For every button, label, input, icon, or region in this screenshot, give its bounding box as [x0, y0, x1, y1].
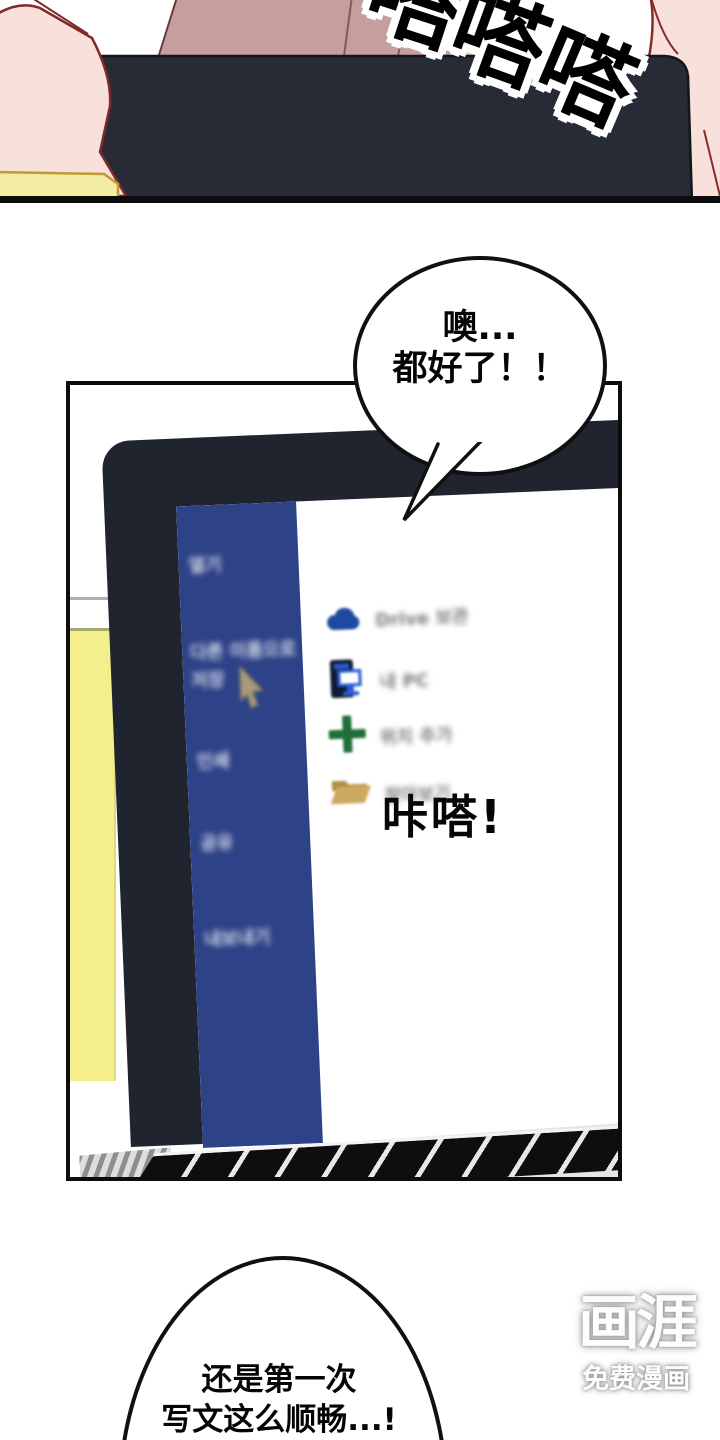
- left-arm: [0, 5, 126, 196]
- sidebar-item-saveas: 다른 이름으로: [190, 635, 297, 665]
- speech-bubble-top-tail: [392, 442, 492, 526]
- mouse-cursor-icon: [237, 666, 269, 713]
- speech-line: 写文这么顺畅...!: [112, 1400, 446, 1440]
- sidebar-item-open: 열기: [188, 551, 222, 578]
- sidebar-item-export: 내보내기: [204, 923, 271, 952]
- panel-typing-scene: 嗒 嗒 嗒: [0, 0, 720, 203]
- panel-laptop-screen: 열기 다른 이름으로 저장 인쇄 공유 내보내기: [66, 381, 622, 1181]
- word-backstage-sidebar: 열기 다른 이름으로 저장 인쇄 공유 내보내기: [176, 502, 323, 1148]
- site-watermark: 画涯 免费漫画: [552, 1290, 720, 1396]
- speech-line: 都好了！！: [353, 349, 607, 390]
- panel-border: [0, 196, 720, 203]
- watermark-logo: 画涯: [552, 1292, 720, 1355]
- menu-label-drive: Drive 보관: [374, 602, 468, 632]
- watermark-tagline: 免费漫画: [552, 1357, 720, 1396]
- sidebar-item-share: 공유: [200, 828, 234, 855]
- menu-label-add-place: 위치 추가: [379, 721, 453, 750]
- cloud-icon: [324, 603, 365, 637]
- pc-icon: [330, 657, 370, 705]
- menu-label-pc: 내 PC: [379, 666, 429, 694]
- add-place-icon: [328, 715, 368, 759]
- speech-line: 噢...: [353, 308, 607, 349]
- sfx-click: 咔嗒!: [382, 781, 504, 847]
- comic-page: 嗒 嗒 嗒 열기 다른 이름으로 저장 인쇄 공유 내보내기: [0, 0, 720, 1440]
- speech-bubble-top-text: 噢... 都好了！！: [353, 308, 607, 390]
- speech-bubble-bottom-text: 还是第一次 写文这么顺畅...!: [112, 1360, 446, 1440]
- laptop: 열기 다른 이름으로 저장 인쇄 공유 내보내기: [66, 381, 622, 1181]
- speech-line: 还是第一次: [112, 1360, 446, 1400]
- sidebar-item-print: 인쇄: [196, 747, 230, 774]
- browse-folder-icon: [330, 775, 373, 811]
- sidebar-item-saveas-line2: 저장: [191, 666, 225, 693]
